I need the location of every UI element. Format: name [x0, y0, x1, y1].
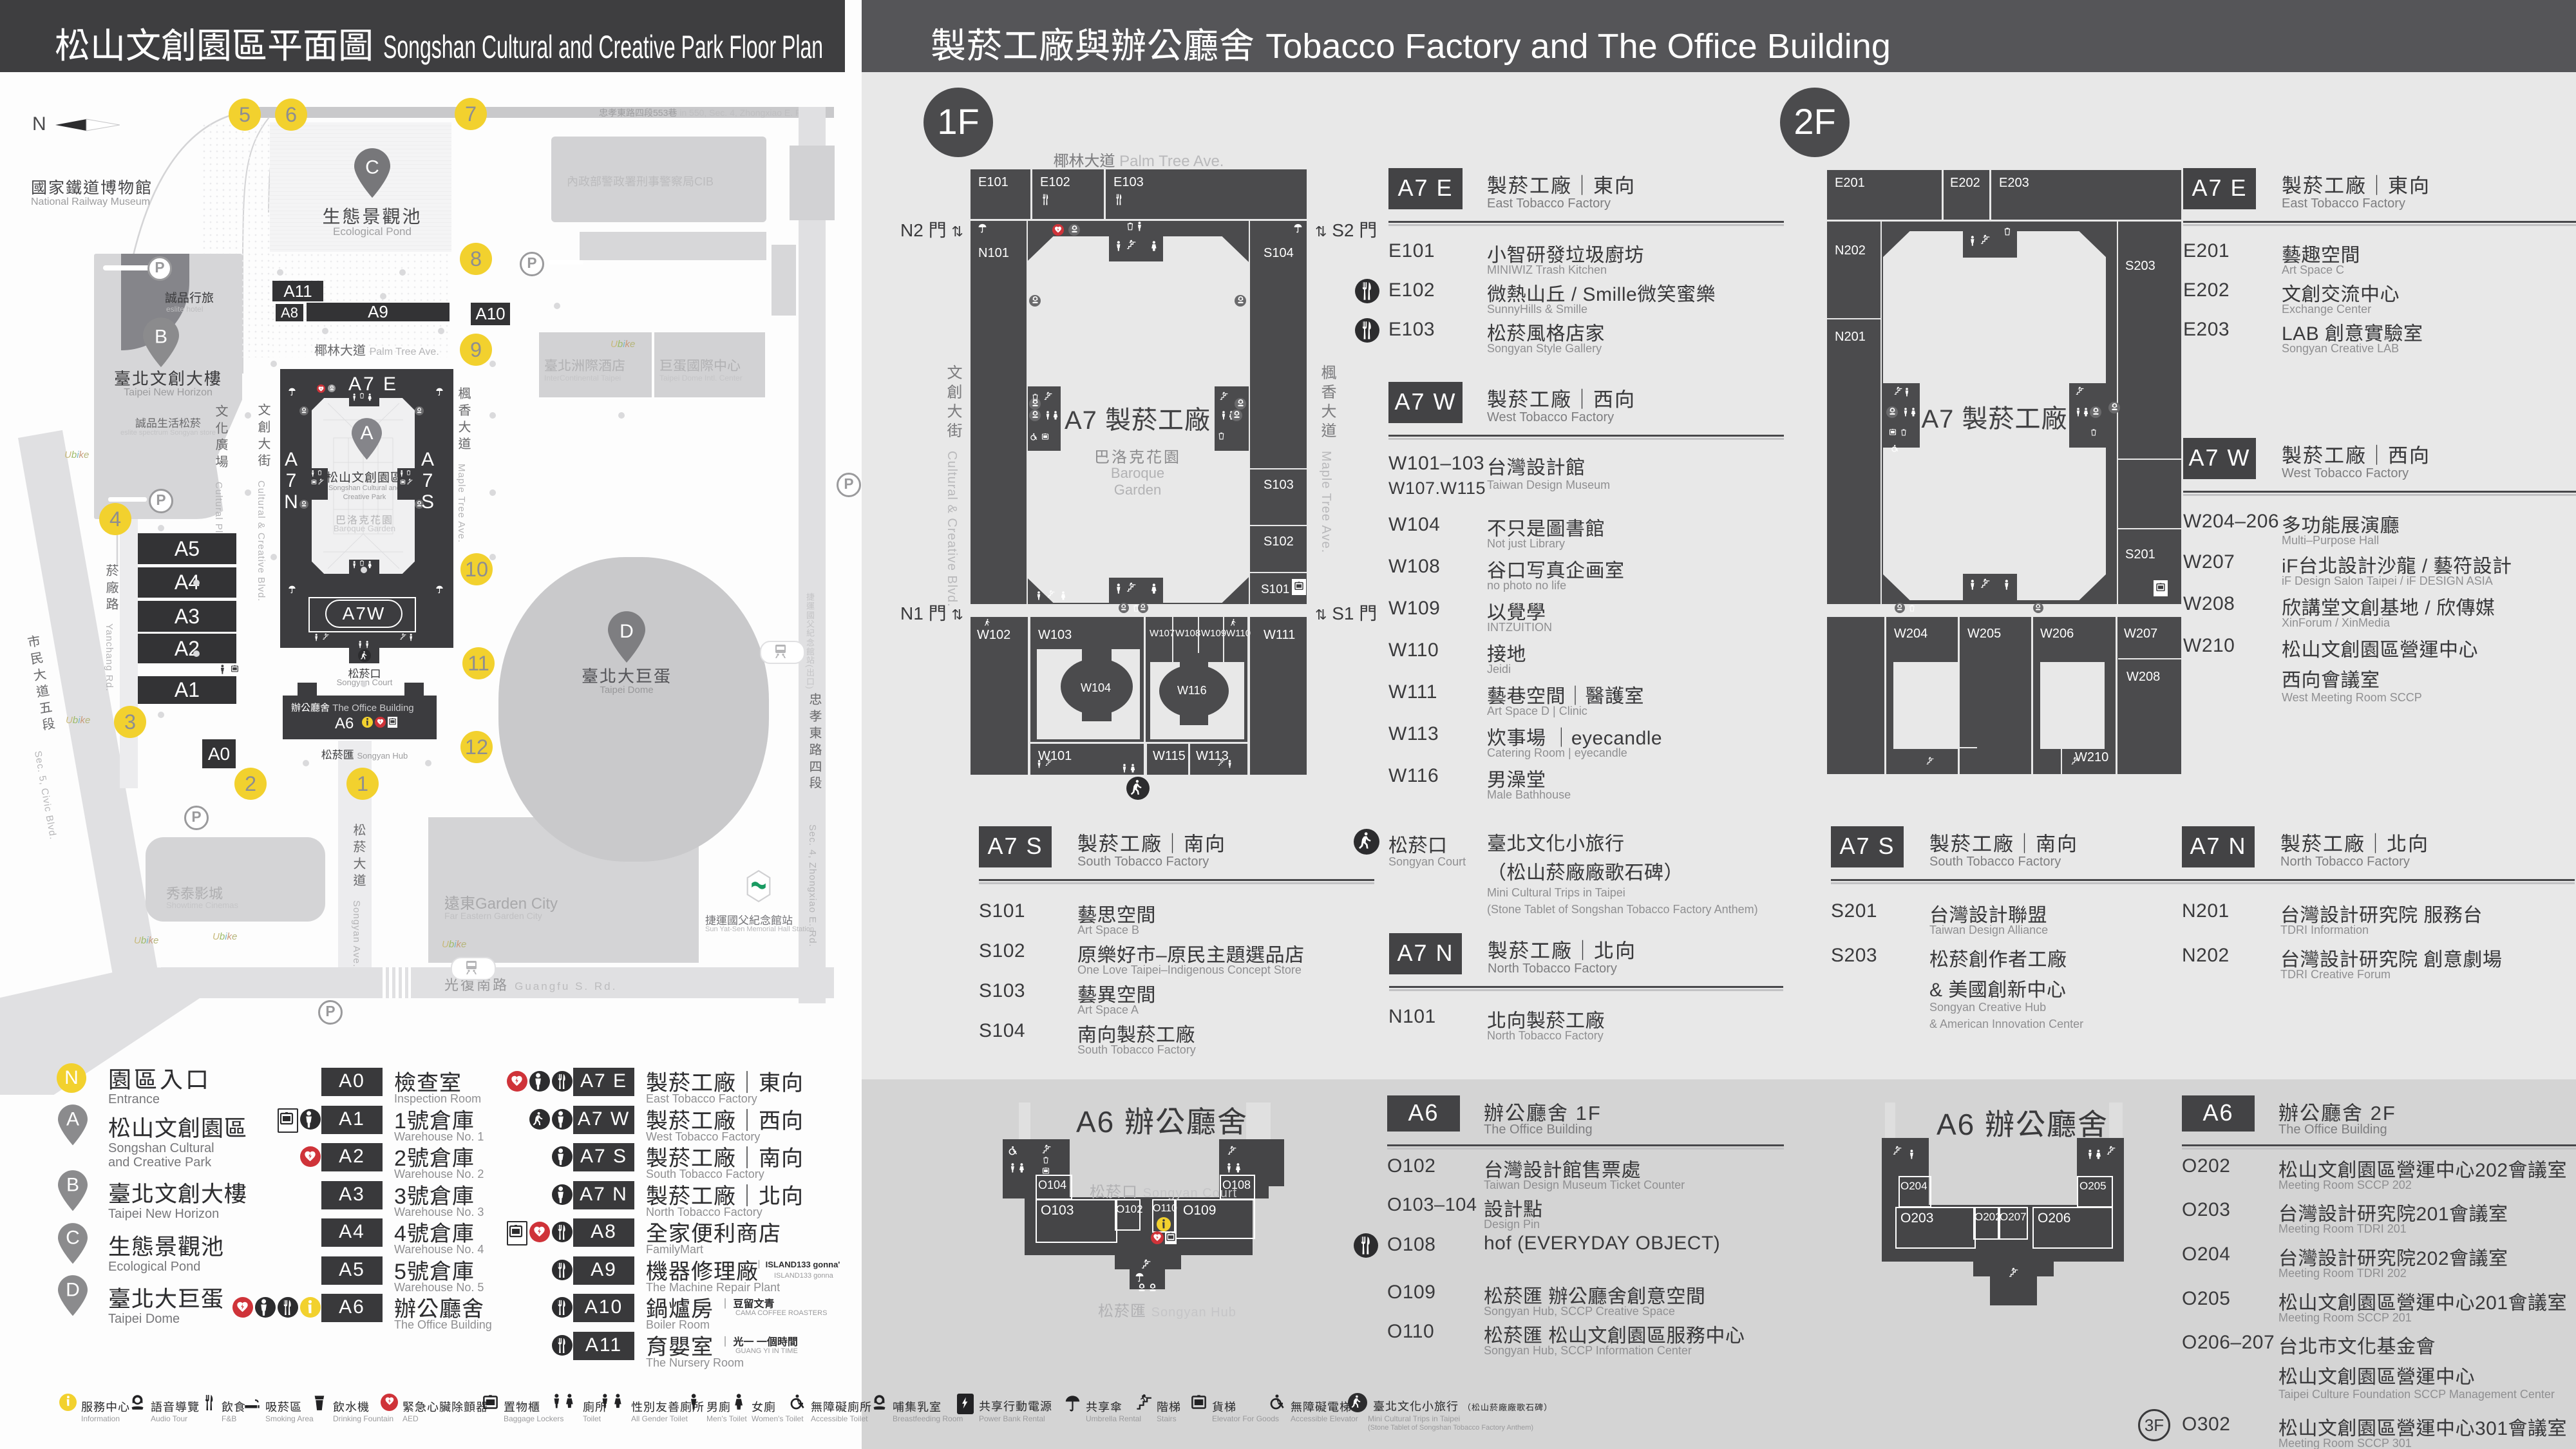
svg-text:D: D: [66, 1280, 80, 1301]
svg-text:C: C: [66, 1227, 80, 1249]
svg-text:D: D: [620, 621, 634, 642]
svg-text:B: B: [66, 1175, 79, 1196]
svg-text:A: A: [360, 422, 373, 444]
svg-text:B: B: [155, 326, 167, 347]
svg-text:C: C: [365, 156, 379, 178]
svg-text:A: A: [66, 1109, 79, 1130]
